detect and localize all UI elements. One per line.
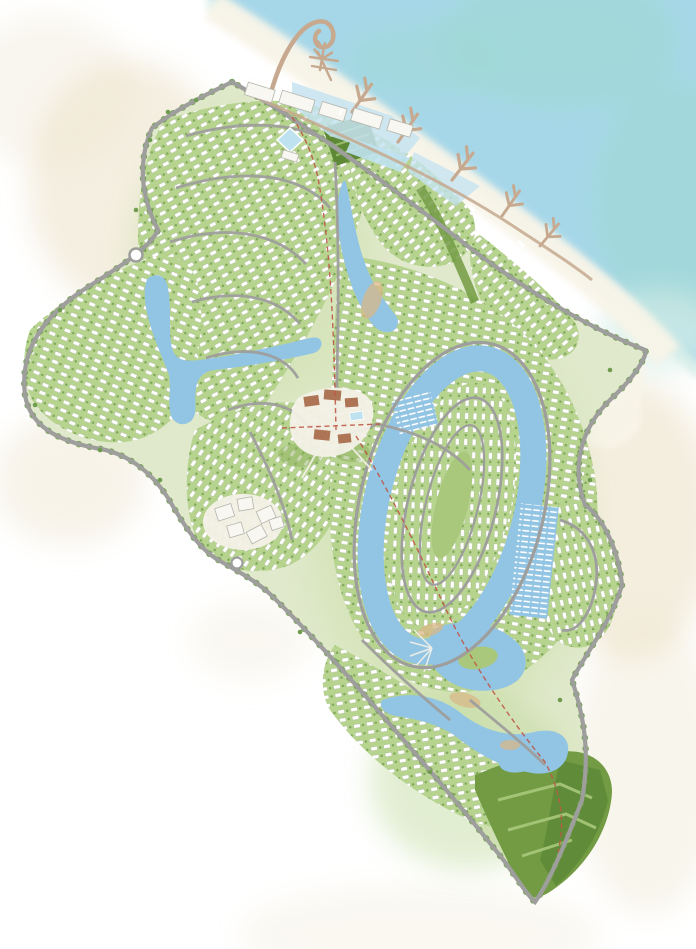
tree-dot (158, 478, 163, 483)
tree-dot (608, 368, 613, 373)
tree-dot (58, 308, 63, 313)
tree-dot (588, 478, 593, 483)
hotel-building (237, 497, 254, 511)
tree-dot (148, 138, 153, 143)
roundabout (130, 249, 143, 262)
plaza-pool (350, 411, 364, 421)
sand-bunker (500, 740, 520, 750)
town-center-building (303, 395, 319, 407)
tree-dot (33, 403, 38, 408)
tree-dot (98, 448, 103, 453)
tree-dot (194, 98, 199, 103)
tree-dot (428, 770, 433, 775)
town-center-building (324, 389, 342, 400)
tree-dot (166, 110, 171, 115)
town-center-building (338, 433, 352, 443)
roundabout (232, 558, 243, 569)
tree-dot (558, 698, 563, 703)
sea-teal-wash (340, 20, 500, 100)
masterplan-svg (0, 0, 696, 949)
tree-dot (134, 208, 139, 213)
town-center-building (345, 398, 359, 408)
town-center-building (314, 429, 331, 441)
masterplan-screenshot (0, 0, 696, 949)
tree-dot (298, 630, 303, 635)
